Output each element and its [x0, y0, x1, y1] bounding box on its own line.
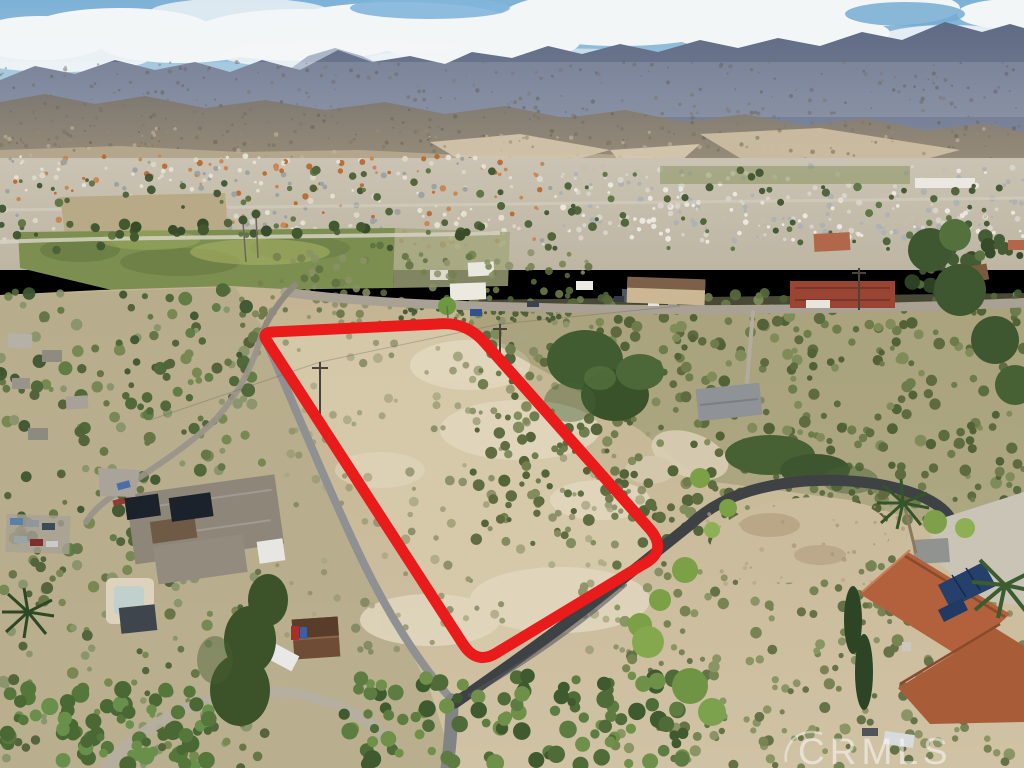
tan-house	[627, 277, 706, 306]
gray-roof-house	[696, 383, 763, 422]
aerial-photo: CRMLS	[0, 0, 1024, 768]
aerial-photo-canvas: CRMLS	[0, 0, 1024, 768]
valley-green-strip	[660, 166, 910, 184]
watermark-text: CRMLS	[798, 731, 953, 768]
valley-warehouse	[915, 178, 975, 188]
left-house-driveway	[98, 468, 140, 497]
terracotta-house-top	[814, 232, 851, 252]
watermark: CRMLS	[786, 731, 953, 768]
terracotta-corner	[1008, 240, 1024, 250]
white-shed	[257, 538, 286, 563]
pale-field	[393, 228, 510, 288]
red-roof-house	[790, 281, 895, 308]
